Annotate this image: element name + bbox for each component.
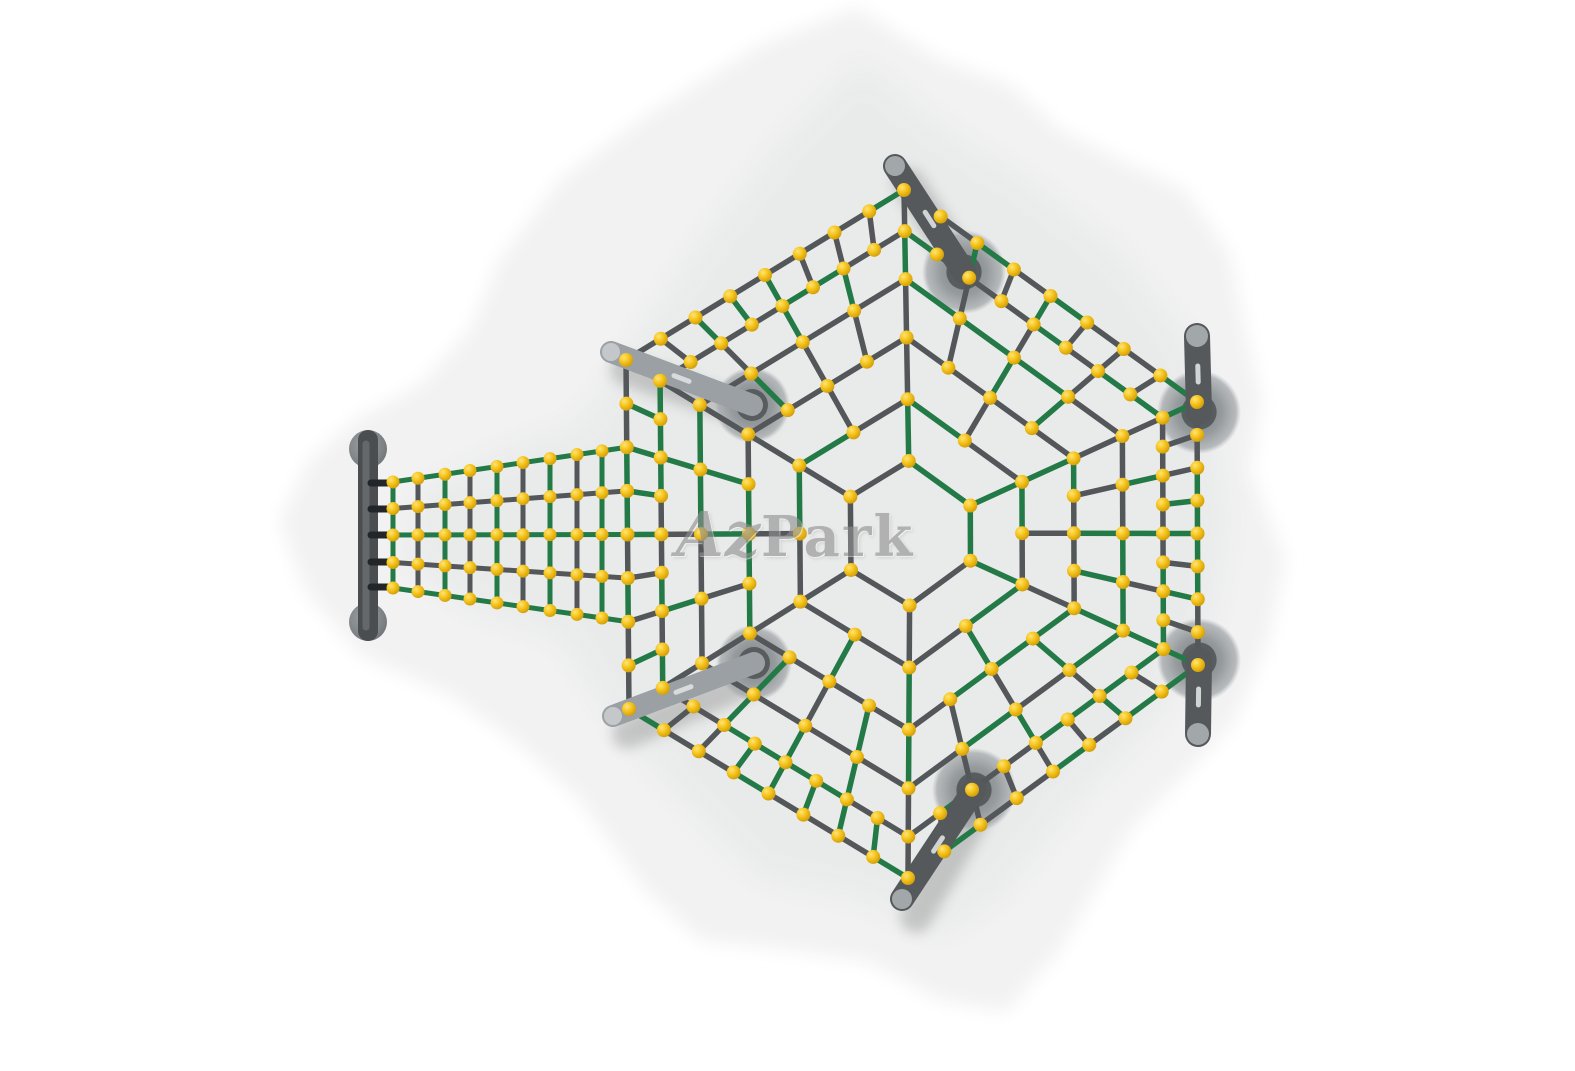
connector-ball — [621, 528, 635, 542]
connector-ball — [571, 528, 584, 541]
post-tip-cap — [1186, 325, 1208, 347]
connector-ball — [747, 688, 761, 702]
connector-ball — [695, 592, 709, 606]
connector-ball — [1116, 624, 1130, 638]
connector-ball — [412, 472, 425, 485]
connector-ball — [387, 502, 400, 515]
post-tip-cap — [604, 707, 622, 725]
connector-ball — [439, 498, 452, 511]
connector-ball — [902, 781, 916, 795]
post-tip-cap — [602, 343, 620, 361]
connector-ball — [544, 604, 557, 617]
connector-ball — [464, 561, 477, 574]
connector-ball — [937, 844, 951, 858]
connector-ball — [963, 554, 977, 568]
connector-ball — [1116, 526, 1130, 540]
connector-ball — [994, 294, 1008, 308]
connector-ball — [517, 492, 530, 505]
connector-ball — [620, 484, 634, 498]
connector-ball — [1046, 765, 1060, 779]
connector-ball — [517, 565, 530, 578]
connector-ball — [655, 566, 669, 580]
connector-ball — [387, 556, 400, 569]
connector-ball — [943, 692, 957, 706]
connector-ball — [850, 750, 864, 764]
connector-ball — [748, 737, 762, 751]
connector-ball — [844, 563, 858, 577]
connector-ball — [1115, 429, 1129, 443]
connector-ball — [934, 210, 948, 224]
connector-ball — [1191, 658, 1205, 672]
connector-ball — [544, 566, 557, 579]
connector-ball — [1156, 411, 1170, 425]
connector-ball — [621, 615, 635, 629]
connector-ball — [654, 527, 668, 541]
connector-ball — [1026, 632, 1040, 646]
connector-ball — [962, 271, 976, 285]
connector-ball — [775, 299, 789, 313]
connector-ball — [694, 527, 708, 541]
ground-shadow — [280, 8, 1285, 1012]
connector-ball — [619, 397, 633, 411]
connector-ball — [491, 460, 504, 473]
connector-ball — [517, 528, 530, 541]
connector-ball — [974, 818, 988, 832]
connector-ball — [793, 247, 807, 261]
connector-ball — [387, 528, 400, 541]
connector-ball — [745, 318, 759, 332]
connector-ball — [970, 236, 984, 250]
connector-ball — [439, 589, 452, 602]
connector-ball — [439, 559, 452, 572]
connector-ball — [959, 619, 973, 633]
connector-ball — [1025, 421, 1039, 435]
connector-ball — [963, 498, 977, 512]
connector-ball — [596, 486, 609, 499]
connector-ball — [997, 759, 1011, 773]
connector-ball — [544, 528, 557, 541]
connector-ball — [412, 558, 425, 571]
connector-ball — [1061, 712, 1075, 726]
connector-ball — [741, 427, 755, 441]
connector-ball — [1191, 559, 1205, 573]
connector-ball — [571, 448, 584, 461]
connector-ball — [744, 367, 758, 381]
connector-ball — [727, 765, 741, 779]
connector-ball — [1125, 666, 1139, 680]
rope — [700, 405, 701, 470]
rope — [907, 337, 908, 399]
connector-ball — [860, 355, 874, 369]
connector-ball — [933, 806, 947, 820]
connector-ball — [899, 272, 913, 286]
connector-ball — [792, 459, 806, 473]
connector-ball — [412, 528, 425, 541]
connector-ball — [657, 723, 671, 737]
connector-ball — [692, 744, 706, 758]
connector-ball — [941, 361, 955, 375]
connector-ball — [1123, 387, 1137, 401]
connector-ball — [828, 226, 842, 240]
connector-ball — [439, 468, 452, 481]
connector-ball — [1007, 263, 1021, 277]
connector-ball — [653, 374, 667, 388]
connector-ball — [439, 528, 452, 541]
connector-ball — [693, 398, 707, 412]
connector-ball — [793, 595, 807, 609]
connector-ball — [491, 528, 504, 541]
connector-ball — [655, 604, 669, 618]
connector-ball — [1062, 663, 1076, 677]
connector-ball — [491, 596, 504, 609]
connector-ball — [1007, 351, 1021, 365]
rope — [800, 534, 801, 602]
product-render: AzPark — [0, 0, 1575, 1071]
connector-ball — [1067, 526, 1081, 540]
connector-ball — [1156, 526, 1170, 540]
rope — [850, 497, 851, 570]
connector-ball — [985, 662, 999, 676]
connector-ball — [1029, 736, 1043, 750]
connector-ball — [571, 568, 584, 581]
connector-ball — [596, 570, 609, 583]
connector-ball — [742, 477, 756, 491]
connector-ball — [1082, 738, 1096, 752]
connector-ball — [1067, 601, 1081, 615]
connector-ball — [1015, 577, 1029, 591]
connector-ball — [1190, 494, 1204, 508]
connector-ball — [1190, 395, 1204, 409]
scene-svg — [0, 0, 1575, 1071]
connector-ball — [902, 723, 916, 737]
connector-ball — [1015, 526, 1029, 540]
connector-ball — [742, 527, 756, 541]
connector-ball — [1091, 364, 1105, 378]
connector-ball — [1156, 440, 1170, 454]
connector-ball — [903, 598, 917, 612]
connector-ball — [781, 403, 795, 417]
connector-ball — [866, 850, 880, 864]
connector-ball — [1093, 689, 1107, 703]
connector-ball — [820, 379, 834, 393]
connector-ball — [1156, 555, 1170, 569]
connector-ball — [717, 718, 731, 732]
connector-ball — [1116, 478, 1130, 492]
connector-ball — [714, 336, 728, 350]
connector-ball — [571, 488, 584, 501]
connector-ball — [1156, 584, 1170, 598]
connector-ball — [387, 582, 400, 595]
connector-ball — [655, 642, 669, 656]
connector-ball — [653, 412, 667, 426]
connector-ball — [517, 600, 530, 613]
post-tip-cap — [1187, 723, 1209, 745]
connector-ball — [1190, 461, 1204, 475]
connector-ball — [1059, 341, 1073, 355]
connector-ball — [1156, 642, 1170, 656]
connector-ball — [491, 494, 504, 507]
connector-ball — [901, 392, 915, 406]
connector-ball — [837, 262, 851, 276]
connector-ball — [654, 332, 668, 346]
connector-ball — [621, 571, 635, 585]
connector-ball — [596, 611, 609, 624]
connector-ball — [867, 243, 881, 257]
connector-ball — [1119, 711, 1133, 725]
connector-ball — [871, 811, 885, 825]
connector-ball — [1009, 702, 1023, 716]
rope — [905, 231, 906, 279]
connector-ball — [1156, 498, 1170, 512]
connector-ball — [743, 626, 757, 640]
connector-ball — [620, 440, 634, 454]
connector-ball — [654, 489, 668, 503]
post-tip-cap — [892, 889, 912, 909]
connector-ball — [723, 289, 737, 303]
connector-ball — [571, 608, 584, 621]
connector-ball — [901, 871, 915, 885]
connector-ball — [544, 452, 557, 465]
connector-ball — [1067, 564, 1081, 578]
connector-ball — [965, 783, 979, 797]
connector-ball — [862, 204, 876, 218]
connector-ball — [1191, 527, 1205, 541]
connector-ball — [953, 311, 967, 325]
connector-ball — [862, 699, 876, 713]
connector-ball — [491, 563, 504, 576]
rope — [908, 399, 909, 461]
connector-ball — [464, 496, 477, 509]
connector-ball — [622, 702, 636, 716]
connector-ball — [1015, 475, 1029, 489]
connector-ball — [758, 268, 772, 282]
connector-ball — [693, 463, 707, 477]
connector-ball — [796, 808, 810, 822]
connector-ball — [796, 335, 810, 349]
connector-ball — [686, 699, 700, 713]
connector-ball — [831, 829, 845, 843]
connector-ball — [846, 425, 860, 439]
connector-ball — [1156, 469, 1170, 483]
connector-ball — [897, 183, 911, 197]
connector-ball — [1117, 342, 1131, 356]
connector-ball — [983, 391, 997, 405]
rope — [906, 279, 907, 337]
connector-ball — [840, 792, 854, 806]
connector-ball — [1156, 613, 1170, 627]
connector-ball — [1067, 489, 1081, 503]
connector-ball — [901, 830, 915, 844]
connector-ball — [654, 451, 668, 465]
connector-ball — [806, 280, 820, 294]
connector-ball — [464, 464, 477, 477]
connector-ball — [464, 593, 477, 606]
connector-ball — [656, 681, 670, 695]
connector-ball — [742, 577, 756, 591]
connector-ball — [1044, 289, 1058, 303]
connector-ball — [1191, 592, 1205, 606]
connector-ball — [684, 355, 698, 369]
connector-ball — [1010, 791, 1024, 805]
connector-ball — [544, 490, 557, 503]
connector-ball — [1027, 317, 1041, 331]
post-tip-cap — [885, 156, 905, 176]
connector-ball — [412, 585, 425, 598]
connector-ball — [809, 774, 823, 788]
connector-ball — [778, 755, 792, 769]
connector-ball — [902, 661, 916, 675]
connector-ball — [798, 719, 812, 733]
connector-ball — [898, 224, 912, 238]
rope — [702, 599, 703, 664]
connector-ball — [412, 500, 425, 513]
connector-ball — [847, 304, 861, 318]
connector-ball — [517, 456, 530, 469]
connector-ball — [793, 527, 807, 541]
rope — [700, 470, 701, 535]
connector-ball — [1061, 390, 1075, 404]
rope — [799, 466, 800, 534]
connector-ball — [1190, 428, 1204, 442]
connector-ball — [1155, 685, 1169, 699]
connector-ball — [596, 444, 609, 457]
connector-ball — [689, 311, 703, 325]
connector-ball — [1191, 625, 1205, 639]
connector-ball — [387, 475, 400, 488]
connector-ball — [848, 628, 862, 642]
rope — [701, 534, 702, 599]
connector-ball — [783, 650, 797, 664]
connector-ball — [762, 787, 776, 801]
connector-ball — [958, 434, 972, 448]
connector-ball — [596, 528, 609, 541]
connector-ball — [1080, 316, 1094, 330]
connector-ball — [955, 742, 969, 756]
connector-ball — [1153, 369, 1167, 383]
connector-ball — [1116, 575, 1130, 589]
connector-ball — [695, 656, 709, 670]
connector-ball — [619, 353, 633, 367]
connector-ball — [902, 454, 916, 468]
connector-ball — [464, 528, 477, 541]
connector-ball — [930, 247, 944, 261]
connector-ball — [1067, 451, 1081, 465]
connector-ball — [822, 674, 836, 688]
connector-ball — [843, 490, 857, 504]
connector-ball — [622, 658, 636, 672]
connector-ball — [900, 330, 914, 344]
